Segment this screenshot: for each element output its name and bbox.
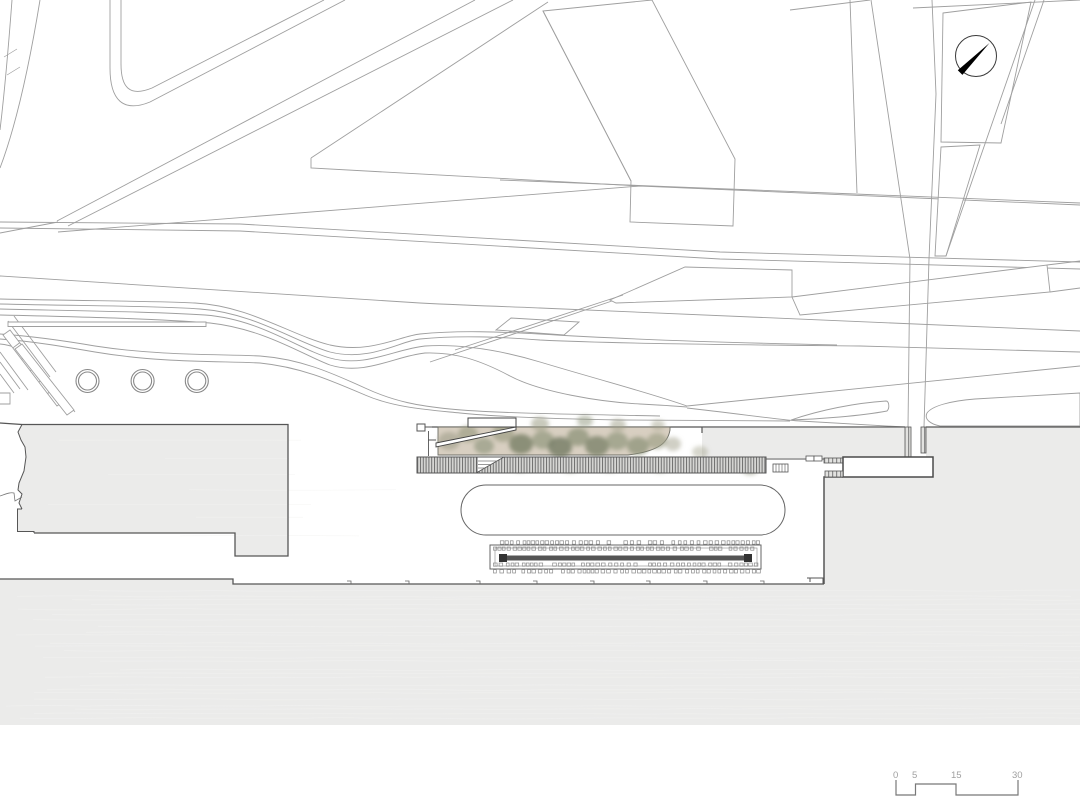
svg-text:30: 30 — [1012, 770, 1023, 781]
svg-text:5: 5 — [912, 770, 917, 781]
svg-text:15: 15 — [951, 770, 962, 781]
svg-text:0: 0 — [893, 770, 898, 781]
